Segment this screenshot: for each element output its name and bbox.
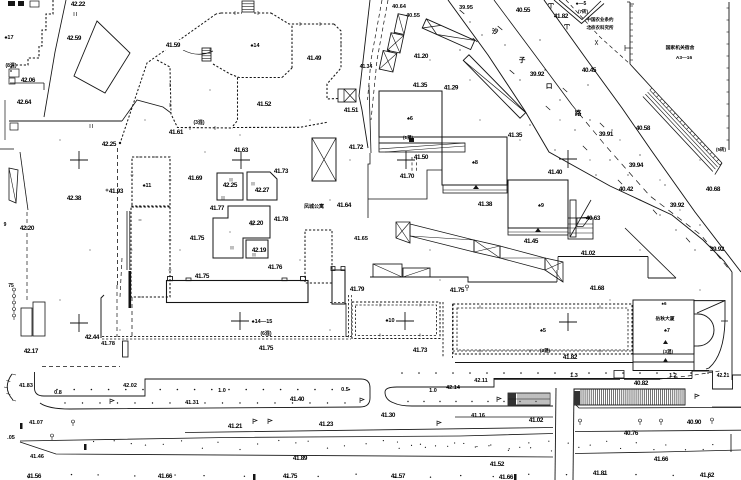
svg-text:41.66: 41.66 [158, 473, 173, 480]
svg-text:41.16: 41.16 [471, 413, 485, 419]
svg-text:41.70: 41.70 [400, 173, 415, 180]
svg-text:41.62: 41.62 [700, 472, 715, 479]
svg-text:39.94: 39.94 [629, 162, 644, 169]
svg-text:路: 路 [575, 108, 582, 117]
svg-text:41.72: 41.72 [349, 144, 364, 151]
svg-text:41.35: 41.35 [413, 82, 428, 89]
svg-text:岳秋大厦: 岳秋大厦 [655, 315, 674, 322]
svg-text:41.77: 41.77 [210, 205, 225, 212]
svg-text:42.25: 42.25 [223, 182, 238, 189]
svg-text:41.78: 41.78 [101, 341, 115, 347]
svg-text:41.75: 41.75 [195, 273, 210, 280]
svg-text:40.68: 40.68 [706, 186, 721, 193]
svg-text:42.02: 42.02 [123, 383, 137, 389]
svg-text:42.21: 42.21 [717, 373, 730, 379]
svg-text:40.76: 40.76 [624, 430, 639, 437]
svg-text:1.3: 1.3 [570, 373, 578, 379]
svg-text:41.75: 41.75 [190, 235, 205, 242]
svg-text:♠6: ♠6 [662, 301, 667, 306]
svg-text:42.20: 42.20 [20, 225, 35, 232]
svg-text:42.64: 42.64 [17, 99, 32, 106]
svg-text:41.46: 41.46 [30, 454, 44, 460]
svg-text:41.29: 41.29 [444, 85, 459, 92]
svg-text:41.65: 41.65 [354, 236, 368, 242]
svg-text:国家机关宿舍: 国家机关宿舍 [666, 44, 695, 51]
svg-text:♠—5: ♠—5 [576, 1, 587, 7]
svg-text:40.45: 40.45 [582, 67, 597, 74]
svg-text:41.57: 41.57 [391, 473, 406, 480]
svg-text:41.63: 41.63 [234, 147, 249, 154]
svg-text:41.75: 41.75 [259, 345, 274, 352]
svg-text:42.59: 42.59 [67, 35, 82, 42]
svg-text:中国农业条约: 中国农业条约 [587, 16, 614, 23]
svg-text:41.73: 41.73 [274, 168, 289, 175]
svg-text:♠8: ♠8 [472, 160, 478, 166]
svg-text:42.14: 42.14 [446, 385, 461, 391]
svg-text:42.11: 42.11 [474, 378, 487, 384]
svg-text:(3混): (3混) [540, 347, 551, 354]
svg-text:41.61: 41.61 [169, 129, 184, 136]
svg-text:(5砖): (5砖) [716, 146, 727, 153]
svg-text:(8混): (8混) [5, 62, 16, 69]
svg-text:A3—16: A3—16 [676, 55, 693, 61]
svg-text:(1混): (1混) [403, 134, 414, 141]
svg-text:40.42: 40.42 [619, 186, 634, 193]
svg-text:41.64: 41.64 [337, 202, 352, 209]
svg-text:0.8: 0.8 [54, 390, 62, 396]
svg-text:♠7: ♠7 [664, 328, 670, 334]
svg-text:42.22: 42.22 [71, 1, 86, 8]
svg-text:39.95: 39.95 [459, 5, 473, 11]
svg-text:41.75: 41.75 [283, 473, 298, 480]
svg-text:(6混): (6混) [260, 330, 271, 337]
svg-text:凤城公寓: 凤城公寓 [304, 203, 324, 210]
svg-text:41.82: 41.82 [554, 13, 569, 20]
svg-text:沙: 沙 [492, 27, 499, 35]
svg-text:41.23: 41.23 [319, 421, 334, 428]
svg-text:41.40: 41.40 [548, 169, 563, 176]
svg-text:41.59: 41.59 [166, 42, 181, 49]
svg-text:40.58: 40.58 [636, 125, 651, 132]
svg-text:40.63: 40.63 [586, 215, 601, 222]
svg-text:41.45: 41.45 [524, 238, 539, 245]
svg-text:♠17: ♠17 [4, 35, 13, 41]
svg-text:41.02: 41.02 [529, 417, 544, 424]
svg-text:♠5: ♠5 [540, 328, 546, 334]
svg-text:42.19: 42.19 [252, 247, 267, 254]
svg-text:口: 口 [546, 82, 552, 90]
svg-text:75: 75 [8, 283, 14, 289]
svg-text:41.73: 41.73 [413, 347, 428, 354]
svg-text:1.0: 1.0 [429, 388, 437, 394]
svg-text:41.31: 41.31 [185, 400, 199, 406]
svg-text:41.50: 41.50 [414, 154, 429, 161]
svg-text:41.52: 41.52 [490, 461, 505, 468]
svg-text:41.76: 41.76 [268, 264, 283, 271]
svg-text:1.2: 1.2 [669, 373, 677, 379]
svg-text:41.81: 41.81 [593, 470, 608, 477]
svg-text:40.55: 40.55 [516, 7, 531, 14]
svg-text:40.90: 40.90 [687, 419, 702, 426]
svg-text:40.55: 40.55 [406, 13, 420, 19]
svg-text:♠14: ♠14 [250, 43, 260, 49]
svg-text:41.38: 41.38 [478, 201, 493, 208]
svg-text:42.20: 42.20 [249, 220, 264, 227]
svg-text:39.92: 39.92 [670, 202, 685, 209]
svg-text:41.68: 41.68 [590, 285, 605, 292]
svg-text:39.92: 39.92 [710, 246, 725, 253]
svg-text:9: 9 [4, 222, 7, 228]
svg-text:♠9: ♠9 [538, 203, 544, 209]
svg-text:41.79: 41.79 [350, 286, 365, 293]
svg-text:41.66: 41.66 [654, 456, 669, 463]
svg-text:41.40: 41.40 [290, 396, 305, 403]
svg-text:(7砖): (7砖) [578, 8, 589, 15]
svg-text:41.49: 41.49 [307, 55, 322, 62]
svg-text:41.07: 41.07 [29, 420, 43, 426]
svg-text:41.02: 41.02 [581, 250, 596, 257]
svg-text:♠10: ♠10 [385, 318, 394, 324]
svg-text:1.0: 1.0 [218, 388, 226, 394]
svg-text:41.34: 41.34 [360, 64, 373, 70]
svg-text:♠14—15: ♠14—15 [252, 319, 273, 325]
svg-text:41.78: 41.78 [274, 216, 289, 223]
svg-text:42.25: 42.25 [102, 141, 117, 148]
svg-text:40.64: 40.64 [392, 4, 407, 10]
svg-text:39.92: 39.92 [530, 71, 545, 78]
svg-text:♠11: ♠11 [143, 183, 152, 189]
svg-text:.05: .05 [7, 435, 15, 441]
svg-text:42.27: 42.27 [255, 187, 270, 194]
svg-text:41.83: 41.83 [19, 383, 33, 389]
svg-text:41.52: 41.52 [257, 101, 272, 108]
svg-text:41.69: 41.69 [188, 175, 203, 182]
svg-text:41.20: 41.20 [414, 53, 429, 60]
svg-text:42.38: 42.38 [67, 195, 82, 202]
svg-text:40.82: 40.82 [634, 380, 649, 387]
svg-text:41.89: 41.89 [293, 455, 308, 462]
svg-text:子: 子 [519, 56, 526, 64]
svg-text:42.44: 42.44 [85, 334, 100, 341]
svg-text:(3混): (3混) [193, 119, 204, 126]
svg-text:41.75: 41.75 [450, 287, 465, 294]
svg-text:42.06: 42.06 [21, 77, 36, 84]
svg-text:41.82: 41.82 [563, 354, 578, 361]
svg-text:42.17: 42.17 [24, 348, 39, 355]
svg-text:♠6: ♠6 [407, 116, 413, 122]
svg-text:41.51: 41.51 [344, 107, 359, 114]
svg-text:41.21: 41.21 [228, 423, 243, 430]
svg-text:41.66: 41.66 [499, 474, 514, 480]
svg-text:41.35: 41.35 [508, 132, 523, 139]
svg-text:(3混): (3混) [663, 348, 674, 355]
svg-text:0.5: 0.5 [341, 387, 349, 393]
svg-text:41.93: 41.93 [109, 188, 124, 195]
svg-text:41.30: 41.30 [381, 412, 396, 419]
svg-text:39.91: 39.91 [599, 131, 614, 138]
svg-text:北京农科究所: 北京农科究所 [587, 24, 614, 31]
svg-text:41.56: 41.56 [27, 473, 42, 480]
